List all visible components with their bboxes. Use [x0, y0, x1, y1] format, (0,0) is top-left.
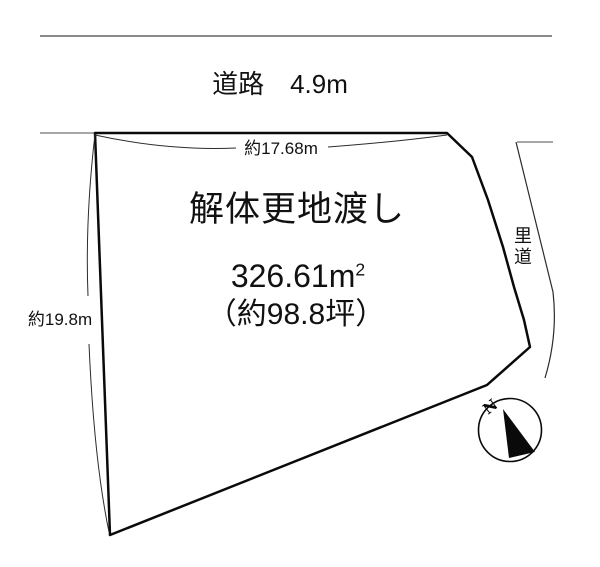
left-edge-dimension-label: 約19.8m: [28, 311, 92, 328]
top-edge-dimension-label: 約17.68m: [244, 140, 318, 157]
road-width-label: 道路 4.9m: [212, 71, 348, 97]
plot-tsubo-label: （約98.8坪）: [207, 300, 385, 330]
land-plot-diagram: N 道路 4.9m 約17.68m 解体更地渡し 326.61m2 （約98.8…: [0, 0, 600, 567]
plot-condition-label: 解体更地渡し: [189, 192, 405, 227]
left-dimension-arc-top: [87, 134, 95, 296]
side-road-label: 里道: [513, 226, 531, 268]
area-value: 326.61: [231, 258, 329, 294]
area-unit: m: [329, 258, 356, 294]
plot-area-label: 326.61m2: [231, 260, 365, 292]
compass: N: [479, 395, 542, 461]
area-unit-exponent: 2: [355, 259, 365, 279]
